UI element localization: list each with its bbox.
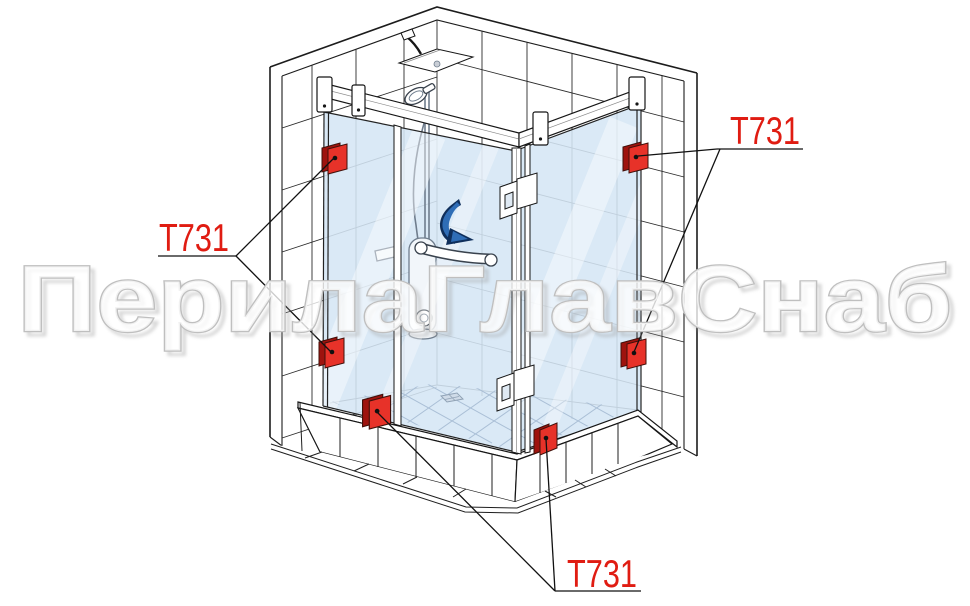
shower-arm-mount [401, 29, 415, 40]
shower-enclosure-diagram: T731 T731 T731 ПерилаГлавСнаб ПерилаГлав… [0, 0, 970, 606]
part-label-bottom: T731 [567, 553, 637, 596]
clamp-upper-right [623, 142, 648, 173]
part-label-top-right: T731 [730, 110, 800, 153]
hand-shower [402, 79, 438, 108]
watermark: ПерилаГлавСнаб ПерилаГлавСнаб [18, 246, 957, 355]
clamp-upper-left [322, 143, 347, 174]
watermark-text: ПерилаГлавСнаб [18, 246, 953, 351]
clamp-bottom-front [363, 394, 391, 429]
rain-nozzle [434, 61, 440, 67]
shower-diagram-page: T731 T731 T731 ПерилаГлавСнаб ПерилаГлав… [0, 0, 970, 606]
shower-arm [407, 37, 421, 54]
overhead-rain-shower [399, 29, 473, 72]
